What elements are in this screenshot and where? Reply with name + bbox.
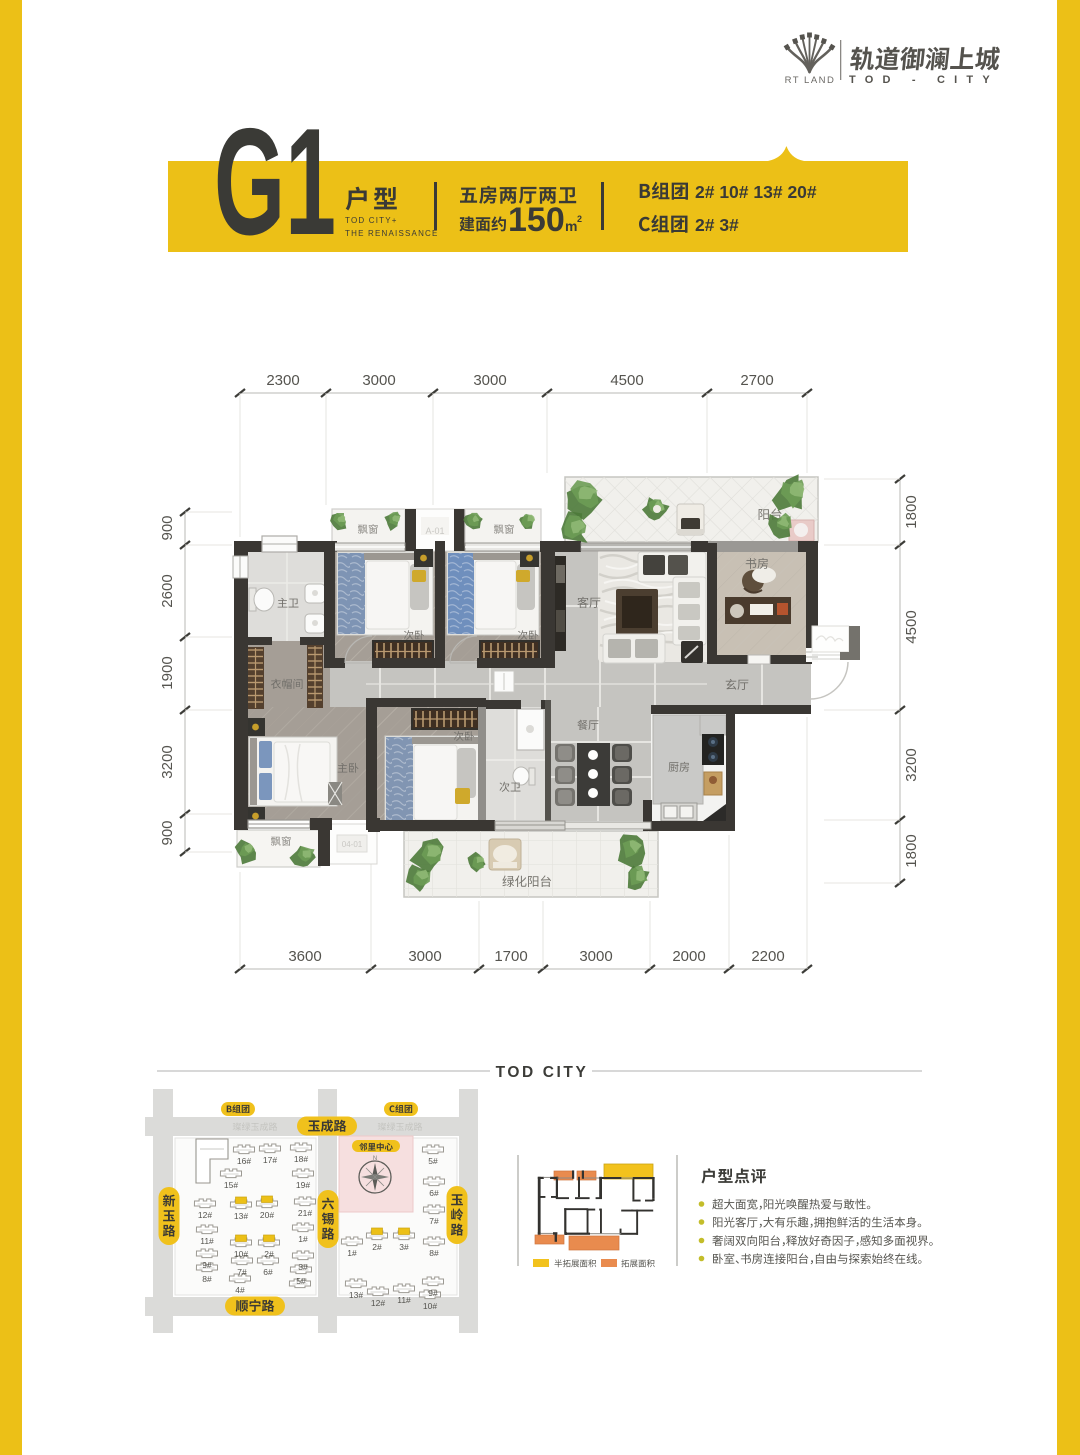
- svg-text:2600: 2600: [159, 574, 176, 607]
- svg-text:2700: 2700: [740, 372, 773, 389]
- svg-text:2# 10# 13# 20#: 2# 10# 13# 20#: [695, 182, 817, 202]
- svg-text:2# 3#: 2# 3#: [695, 215, 739, 235]
- svg-text:m: m: [565, 218, 577, 234]
- svg-text:N: N: [373, 1156, 377, 1162]
- svg-text:1800: 1800: [903, 834, 920, 867]
- svg-text:15#: 15#: [224, 1180, 238, 1190]
- svg-text:3#: 3#: [399, 1242, 409, 1252]
- svg-text:19#: 19#: [296, 1180, 310, 1190]
- svg-text:3200: 3200: [159, 745, 176, 778]
- svg-text:3200: 3200: [903, 748, 920, 781]
- svg-text:TOD CITY+: TOD CITY+: [345, 216, 398, 225]
- svg-text:3000: 3000: [579, 948, 612, 965]
- svg-text:7#: 7#: [429, 1216, 439, 1226]
- svg-text:17#: 17#: [263, 1155, 277, 1165]
- svg-text:3000: 3000: [473, 372, 506, 389]
- svg-text:6#: 6#: [429, 1188, 439, 1198]
- svg-text:10#: 10#: [234, 1249, 248, 1259]
- svg-text:3000: 3000: [408, 948, 441, 965]
- svg-text:2000: 2000: [672, 948, 705, 965]
- svg-text:18#: 18#: [294, 1154, 308, 1164]
- svg-text:THE RENAISSANCE: THE RENAISSANCE: [345, 229, 439, 238]
- svg-text:1900: 1900: [159, 656, 176, 689]
- svg-text:TOD - CITY: TOD - CITY: [849, 74, 999, 86]
- svg-text:9#: 9#: [202, 1260, 212, 1270]
- svg-text:4#: 4#: [235, 1285, 245, 1295]
- svg-text:4500: 4500: [610, 372, 643, 389]
- svg-text:2: 2: [577, 214, 582, 224]
- svg-text:12#: 12#: [198, 1210, 212, 1220]
- svg-text:13#: 13#: [349, 1290, 363, 1300]
- svg-text:3000: 3000: [362, 372, 395, 389]
- svg-text:10#: 10#: [423, 1301, 437, 1311]
- svg-text:8#: 8#: [202, 1274, 212, 1284]
- svg-text:900: 900: [159, 515, 176, 540]
- svg-text:13#: 13#: [234, 1211, 248, 1221]
- svg-text:150: 150: [508, 201, 565, 239]
- svg-text:5#: 5#: [296, 1276, 306, 1286]
- svg-text:4500: 4500: [903, 610, 920, 643]
- svg-text:2#: 2#: [372, 1242, 382, 1252]
- svg-text:7#: 7#: [237, 1267, 247, 1277]
- svg-text:1#: 1#: [347, 1248, 357, 1258]
- svg-text:2300: 2300: [266, 372, 299, 389]
- svg-text:5#: 5#: [428, 1156, 438, 1166]
- svg-text:1#: 1#: [298, 1234, 308, 1244]
- svg-text:11#: 11#: [397, 1295, 411, 1305]
- svg-text:TOD CITY: TOD CITY: [496, 1064, 589, 1081]
- svg-text:21#: 21#: [298, 1208, 312, 1218]
- svg-text:1700: 1700: [494, 948, 527, 965]
- svg-text:6#: 6#: [263, 1267, 273, 1277]
- svg-text:2200: 2200: [751, 948, 784, 965]
- svg-text:8#: 8#: [429, 1248, 439, 1258]
- svg-text:3#: 3#: [298, 1262, 308, 1272]
- svg-text:12#: 12#: [371, 1298, 385, 1308]
- svg-text:11#: 11#: [200, 1236, 214, 1246]
- svg-text:16#: 16#: [237, 1156, 251, 1166]
- svg-text:2#: 2#: [264, 1249, 274, 1259]
- svg-text:04-01: 04-01: [342, 840, 363, 849]
- svg-text:3600: 3600: [288, 948, 321, 965]
- svg-text:20#: 20#: [260, 1210, 274, 1220]
- svg-text:A-01: A-01: [425, 526, 444, 536]
- svg-text:900: 900: [159, 820, 176, 845]
- svg-text:RT LAND: RT LAND: [785, 75, 836, 86]
- svg-text:9#: 9#: [428, 1288, 438, 1298]
- svg-text:G1: G1: [214, 97, 336, 267]
- svg-text:1800: 1800: [903, 495, 920, 528]
